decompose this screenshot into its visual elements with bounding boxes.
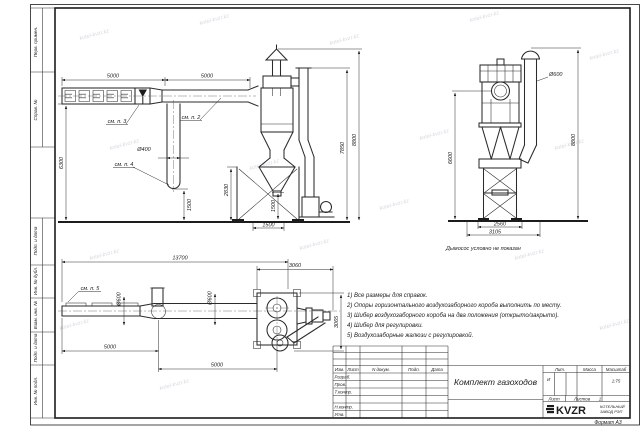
dim-riser-ground-label: 1500 bbox=[187, 198, 193, 211]
scale-label: Масштаб bbox=[606, 367, 627, 372]
dim-d2-label: Ø600 bbox=[208, 290, 214, 305]
dim-riser-diameter-label: Ø400 bbox=[136, 147, 151, 153]
dim-height-left-label: 6600 bbox=[448, 151, 454, 164]
watermark-text: kotel-kvzr.kz bbox=[109, 138, 140, 152]
watermark-text: kotel-kvzr.kz bbox=[59, 318, 90, 332]
col-data: Дата bbox=[430, 367, 443, 372]
dim-duct-top-label: 7850 bbox=[340, 141, 346, 154]
view-battery-cyclone: Ø600 6600 8800 2560 3105 Дымосос условно… bbox=[445, 48, 588, 252]
mass-label: Масса bbox=[583, 367, 597, 372]
callout-damper: см. п. 3 bbox=[108, 119, 128, 125]
note-4: 4) Шибер для регулировки. bbox=[347, 323, 423, 329]
dim-span-left-label: 5000 bbox=[107, 74, 120, 80]
lit-value: И bbox=[547, 377, 551, 382]
logo-text: KVZR bbox=[556, 405, 586, 417]
col-izm: Изм. bbox=[335, 367, 344, 372]
drawing-sheet: kotel-kvzr.kz kotel-kvzr.kz kotel-kvzr.k… bbox=[0, 0, 644, 430]
sheets-value: 1 bbox=[599, 396, 602, 401]
kvzr-logo: KVZR bbox=[546, 405, 586, 417]
margin-label-inv-dubl: Инв. № дубл. bbox=[33, 267, 38, 295]
dim-span1-label: 5000 bbox=[104, 345, 117, 351]
col-podp: Подп. bbox=[408, 367, 420, 372]
notes: 1) Все размеры для справок. 2) Опоры гор… bbox=[346, 293, 561, 339]
watermark-text: kotel-kvzr.kz bbox=[554, 138, 585, 152]
view-duct-elevation: 5000 5000 6300 Ø400 1500 см. п. 3 см. п.… bbox=[58, 74, 350, 223]
row-nkontr: Н.контр. bbox=[335, 405, 354, 410]
dim-depth-label: 3065 bbox=[334, 315, 340, 328]
col-list: Лист bbox=[346, 367, 359, 372]
view-cyclone-elevation: 2830 1500 1500 7850 8800 bbox=[224, 45, 362, 231]
watermark-text: kotel-kvzr.kz bbox=[589, 48, 620, 62]
note-2: 2) Опоры горизонтального воздухозаборног… bbox=[346, 303, 561, 309]
watermark-text: kotel-kvzr.kz bbox=[379, 198, 410, 212]
sheets-label: Листов bbox=[573, 396, 591, 401]
dim-base-inner-label: 2560 bbox=[493, 222, 507, 228]
row-tkontr: Т.контр. bbox=[335, 390, 353, 395]
left-margin-stamp: Перв. примен. Справ. № Подп. и дата Инв.… bbox=[31, 8, 56, 418]
margin-label-sprav-no: Справ. № bbox=[33, 100, 38, 121]
note-5: 5) Воздухозаборные жалюзи с регулировкой… bbox=[347, 332, 473, 339]
title-block: Изм. Лист N докум. Подп. Дата Разраб. Пр… bbox=[333, 346, 630, 426]
dim-d1-label: Ø600 bbox=[117, 291, 123, 306]
watermark-text: kotel-kvzr.kz bbox=[419, 128, 450, 142]
watermark-text: kotel-kvzr.kz bbox=[89, 248, 120, 262]
watermark-text: kotel-kvzr.kz bbox=[199, 13, 230, 27]
watermark-text: kotel-kvzr.kz bbox=[469, 10, 500, 24]
margin-label-podp-data-2: Подп. и дата bbox=[33, 333, 38, 362]
note-3: 3) Шибер воздухозаборного короба на два … bbox=[347, 313, 559, 319]
sheet-label: Лист bbox=[547, 396, 560, 401]
watermarks: kotel-kvzr.kz kotel-kvzr.kz kotel-kvzr.k… bbox=[59, 10, 630, 392]
watermark-text: kotel-kvzr.kz bbox=[249, 158, 280, 172]
watermark-text: kotel-kvzr.kz bbox=[79, 28, 110, 42]
company-line2: ЗАВОД РЭП bbox=[600, 409, 623, 414]
dim-height-label: 6300 bbox=[59, 156, 65, 169]
callout-duct: см. п. 2 bbox=[182, 115, 201, 121]
watermark-text: kotel-kvzr.kz bbox=[329, 33, 360, 47]
view-duct-plan: 13700 3060 3065 Ø600 Ø600 5000 5000 см. … bbox=[58, 256, 344, 373]
drawing-canvas: kotel-kvzr.kz kotel-kvzr.kz kotel-kvzr.k… bbox=[0, 0, 644, 430]
margin-label-inv-podl: Инв. № подл. bbox=[33, 377, 38, 406]
dim-total-label: 13700 bbox=[172, 256, 188, 262]
margin-label-podp-data-1: Подп. и дата bbox=[33, 226, 38, 255]
watermark-text: kotel-kvzr.kz bbox=[599, 318, 630, 332]
smoke-exhauster-caption: Дымосос условно не показан bbox=[445, 246, 521, 252]
row-razrab: Разраб. bbox=[335, 375, 351, 380]
dim-base-label: 1500 bbox=[262, 223, 275, 229]
dim-support-label: 2830 bbox=[224, 183, 230, 197]
dim-height-right-label: 8800 bbox=[571, 133, 577, 146]
dim-span-right-label: 5000 bbox=[201, 74, 214, 80]
dim-span2-label: 5000 bbox=[211, 363, 224, 369]
dim-chimney-diameter-label: Ø600 bbox=[548, 72, 563, 78]
col-docnum: N докум. bbox=[372, 367, 390, 372]
lit-label: Лит. bbox=[554, 367, 565, 372]
drawing-title: Комплект газоходов bbox=[454, 377, 538, 387]
note-1: 1) Все размеры для справок. bbox=[347, 293, 428, 299]
dim-base-outer-label: 3105 bbox=[489, 230, 502, 236]
row-utv: Утв. bbox=[335, 412, 345, 417]
dim-chimney-top-label: 8800 bbox=[352, 133, 358, 146]
scale-value: 1:75 bbox=[612, 379, 621, 384]
dim-cyclone-span-label: 3060 bbox=[289, 263, 302, 269]
watermark-text: kotel-kvzr.kz bbox=[159, 378, 190, 392]
format-label: Формат А3 bbox=[594, 420, 622, 426]
watermark-text: kotel-kvzr.kz bbox=[299, 238, 330, 252]
callout-elbow: см. п. 4 bbox=[115, 162, 134, 168]
sheet-frame bbox=[31, 5, 640, 426]
callout-louvers: см. п. 5 bbox=[81, 286, 101, 292]
row-prov: Пров. bbox=[335, 382, 347, 387]
margin-label-perv-primen: Перв. примен. bbox=[33, 27, 38, 58]
dim-support-inner-label: 1500 bbox=[271, 199, 277, 212]
margin-label-vzam-inv: Взам. инв. № bbox=[33, 301, 38, 329]
